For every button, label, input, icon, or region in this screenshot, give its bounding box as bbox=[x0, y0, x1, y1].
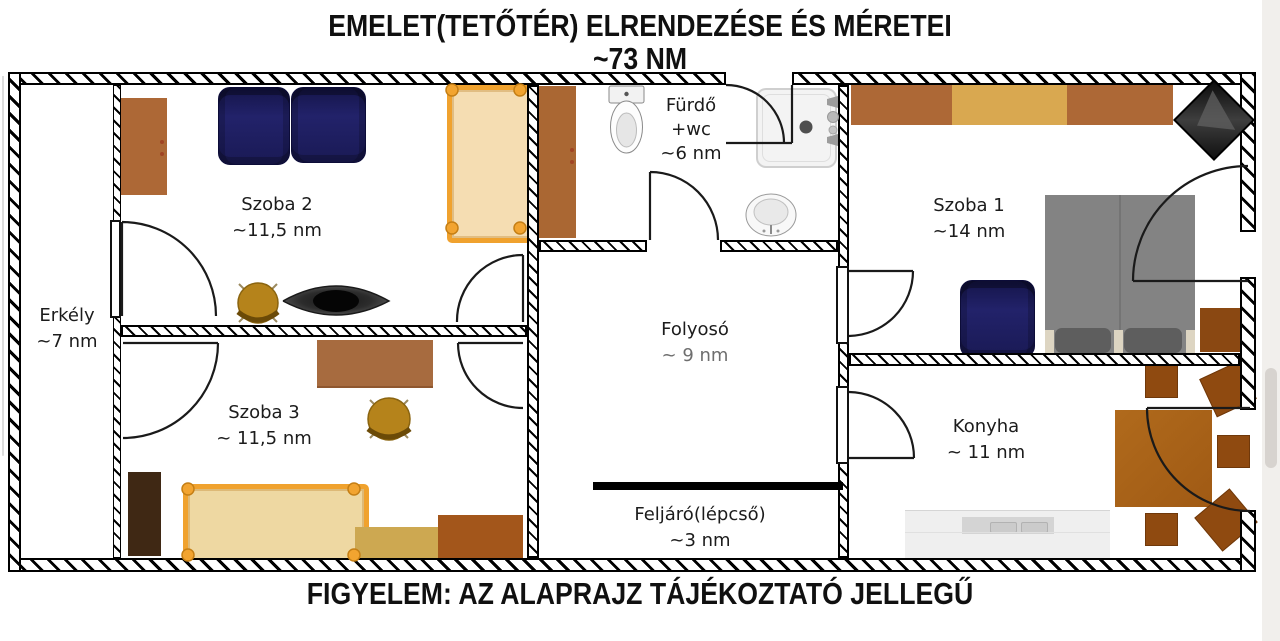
wall-segment bbox=[8, 72, 726, 85]
room-name-2: +wc bbox=[631, 118, 751, 142]
wall-segment bbox=[849, 353, 1240, 366]
pillow bbox=[1124, 328, 1182, 353]
tall-cabinet bbox=[128, 472, 161, 556]
room-area: ~6 nm bbox=[631, 142, 751, 166]
page-title: EMELET(TETŐTÉR) ELRENDEZÉSE ÉS MÉRETEI bbox=[90, 8, 1191, 44]
wall-segment bbox=[8, 558, 1256, 572]
room-label-szoba3: Szoba 3 ~ 11,5 nm bbox=[174, 400, 354, 452]
armchair bbox=[218, 87, 290, 165]
room-area: ~ 11,5 nm bbox=[174, 426, 354, 452]
floor-plan-page: EMELET(TETŐTÉR) ELRENDEZÉSE ÉS MÉRETEI ~… bbox=[0, 0, 1280, 641]
wall-segment bbox=[113, 85, 121, 222]
room-name: Feljáró(lépcső) bbox=[590, 502, 810, 528]
wall-segment bbox=[1240, 277, 1256, 410]
bed-post bbox=[1045, 330, 1054, 354]
room-area: ~ 11 nm bbox=[896, 440, 1076, 466]
room-area: ~14 nm bbox=[879, 219, 1059, 245]
wall-segment bbox=[1240, 72, 1256, 232]
bathroom-cabinet bbox=[533, 86, 576, 238]
room-label-folyoso: Folyosó ~ 9 nm bbox=[615, 317, 775, 369]
counter-edge-line bbox=[905, 532, 1110, 533]
room-label-szoba1: Szoba 1 ~14 nm bbox=[879, 193, 1059, 245]
desk bbox=[317, 340, 433, 388]
dresser bbox=[355, 527, 438, 558]
wall-segment bbox=[720, 240, 838, 252]
room-label-konyha: Konyha ~ 11 nm bbox=[896, 414, 1076, 466]
stair-edge-bar bbox=[593, 482, 843, 490]
page-edge-line bbox=[2, 76, 4, 456]
room-area: ~11,5 nm bbox=[192, 218, 362, 244]
dining-chair bbox=[1217, 435, 1250, 468]
wall-segment bbox=[1240, 510, 1256, 572]
room-name: Szoba 3 bbox=[174, 400, 354, 426]
wall-segment bbox=[8, 72, 21, 572]
door-szoba3-right bbox=[458, 343, 523, 408]
dining-chair bbox=[1145, 365, 1178, 398]
door-szoba2-hall bbox=[457, 255, 523, 322]
mattress-seam bbox=[1119, 195, 1121, 330]
wardrobe bbox=[1067, 85, 1173, 125]
room-area: ~ 9 nm bbox=[615, 343, 775, 369]
wall-segment bbox=[838, 342, 849, 388]
disclaimer-note: FIGYELEM: AZ ALAPRAJZ TÁJÉKOZTATÓ JELLEG… bbox=[90, 576, 1191, 612]
desk-chair bbox=[238, 283, 278, 323]
room-name: Erkély bbox=[21, 303, 113, 329]
room-name: Szoba 1 bbox=[879, 193, 1059, 219]
desk-chair bbox=[368, 398, 410, 440]
door-panel bbox=[836, 266, 849, 344]
room-area: ~3 nm bbox=[590, 528, 810, 554]
door-szoba1-left bbox=[849, 271, 913, 336]
armchair bbox=[291, 87, 366, 163]
single-bed bbox=[447, 85, 535, 243]
dresser bbox=[438, 515, 523, 558]
door-furdo-bottom bbox=[650, 172, 718, 240]
wall-segment bbox=[113, 316, 121, 558]
wardrobe bbox=[952, 85, 1067, 125]
wall-segment bbox=[121, 325, 527, 337]
room-name: Szoba 2 bbox=[192, 192, 362, 218]
room-name: Folyosó bbox=[615, 317, 775, 343]
wall-segment bbox=[527, 85, 539, 558]
wall-segment bbox=[539, 240, 647, 252]
wall-segment bbox=[792, 72, 1256, 85]
wardrobe-handles bbox=[160, 140, 164, 144]
shower-inner-rim bbox=[762, 94, 831, 162]
room-label-szoba2: Szoba 2 ~11,5 nm bbox=[192, 192, 362, 244]
pillow bbox=[1055, 328, 1111, 353]
cabinet-handles bbox=[570, 148, 574, 152]
room-label-furdo: Fürdő +wc ~6 nm bbox=[631, 94, 751, 166]
oval-desk bbox=[283, 286, 389, 315]
room-area: ~7 nm bbox=[21, 329, 113, 355]
shower-tray bbox=[756, 88, 837, 168]
double-bed bbox=[1045, 195, 1195, 355]
room-name: Fürdő bbox=[631, 94, 751, 118]
room-label-erkely: Erkély ~7 nm bbox=[21, 303, 113, 355]
bed-post bbox=[1114, 330, 1123, 354]
wall-segment bbox=[838, 85, 849, 268]
scrollbar-track[interactable] bbox=[1262, 0, 1280, 641]
dining-chair bbox=[1145, 513, 1178, 546]
wall-segment bbox=[838, 462, 849, 558]
wardrobe bbox=[121, 98, 167, 195]
scrollbar-thumb[interactable] bbox=[1265, 368, 1277, 468]
room-label-feljaro: Feljáró(lépcső) ~3 nm bbox=[590, 502, 810, 554]
door-panel bbox=[836, 386, 849, 464]
room-name: Konyha bbox=[896, 414, 1076, 440]
bed-post bbox=[1186, 330, 1195, 354]
wardrobe bbox=[851, 85, 952, 125]
kitchen-counter bbox=[905, 510, 1110, 558]
armchair bbox=[960, 280, 1035, 358]
sink bbox=[746, 194, 796, 236]
dining-table bbox=[1115, 410, 1212, 507]
